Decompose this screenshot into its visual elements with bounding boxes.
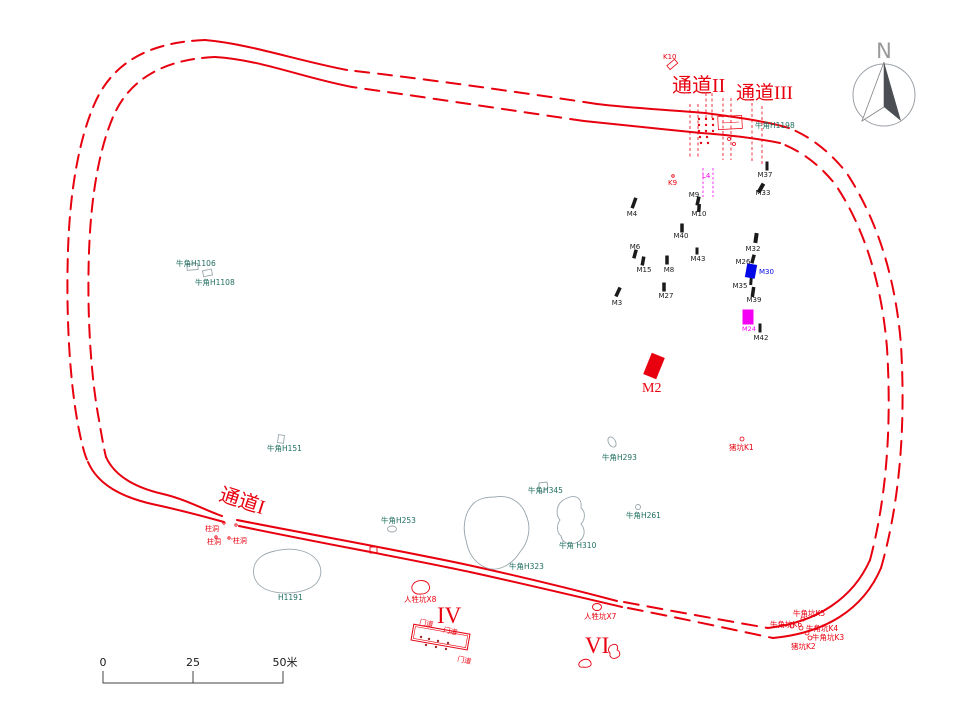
boundary-outer-solid-topleft <box>205 40 347 70</box>
posthole-dot <box>705 124 707 126</box>
map-label: 通道I <box>216 483 267 519</box>
posthole-dot <box>698 124 700 126</box>
map-label: 牛角H151 <box>267 443 302 453</box>
map-label: 50米 <box>273 656 298 669</box>
map-label: IV <box>437 603 462 628</box>
map-label: M4 <box>627 210 638 218</box>
map-label: M40 <box>674 232 689 240</box>
map-label: M42 <box>754 334 769 342</box>
small-pit-circle <box>235 524 237 526</box>
map-label: M27 <box>659 292 674 300</box>
small-pit-circle <box>672 175 675 178</box>
boundary-outer-solid-bottomleft <box>88 462 622 607</box>
tomb-bar-mark <box>750 254 756 264</box>
map-label: M15 <box>637 266 652 274</box>
map-label: VI <box>585 633 609 658</box>
tomb-bar-mark <box>696 248 699 255</box>
small-pit-circle <box>228 537 230 539</box>
tomb-bar-mark <box>766 162 769 171</box>
posthole-dot <box>706 136 708 138</box>
map-label: 猪坑K1 <box>729 442 754 452</box>
map-label: 门道 <box>419 617 435 629</box>
posthole-dot <box>705 118 707 120</box>
boundary-inner-solid-bottomleft <box>106 457 617 601</box>
small-pit-circle <box>733 143 736 146</box>
boundary-inner-dashed-topmiddle <box>352 87 584 121</box>
building-posthole-dot <box>437 640 439 642</box>
map-label: N <box>876 39 892 63</box>
boundary-inner-dashed-right <box>780 143 889 560</box>
map-labels-layer: K10通道II通道III牛角H1198K9L4M37M33M4M9M10M40M… <box>100 39 892 669</box>
posthole-dot <box>698 130 700 132</box>
map-label: L4 <box>702 172 711 180</box>
map-label: 牛角H253 <box>381 515 416 525</box>
map-label: 人牲坑X8 <box>404 594 437 604</box>
site-plan-map: K10通道II通道III牛角H1198K9L4M37M33M4M9M10M40M… <box>0 0 979 708</box>
boundary-outer-dashed-right <box>789 128 903 568</box>
map-label: 牛角H1108 <box>195 277 235 287</box>
building-posthole-dot <box>425 644 427 646</box>
map-label: 牛角坑K4 <box>806 623 838 633</box>
map-label: M8 <box>664 266 675 274</box>
pit-h261-shape <box>636 505 641 510</box>
map-label: 牛角H323 <box>509 561 544 571</box>
map-label: M39 <box>747 296 762 304</box>
tomb-bar-mark <box>640 256 645 265</box>
map-label: M30 <box>759 268 774 276</box>
map-label: M26 <box>736 258 751 266</box>
pit-h310-shape <box>557 497 584 544</box>
tomb-filled-m24 <box>743 310 754 325</box>
map-label: M10 <box>692 210 707 218</box>
map-label: '柱洞 <box>231 536 247 545</box>
tomb-filled-m2 <box>643 353 665 380</box>
pit-h293-shape <box>606 435 618 448</box>
map-label: M2 <box>642 381 661 396</box>
posthole-dot <box>712 130 714 132</box>
map-label: 牛角坑K6 <box>770 619 802 629</box>
area-vi-shape-1 <box>609 644 620 658</box>
map-label: M9 <box>689 191 700 199</box>
map-label: M32 <box>746 245 761 253</box>
pit-h1191-shape <box>253 549 320 593</box>
map-label: M37 <box>758 171 773 179</box>
boundary-inner-solid-top-passage <box>584 121 780 143</box>
scale-bar <box>103 671 283 683</box>
map-canvas: K10通道II通道III牛角H1198K9L4M37M33M4M9M10M40M… <box>0 0 979 708</box>
boundary-inner-dashed-bottom <box>624 602 768 628</box>
tomb-bar-mark <box>759 324 762 333</box>
boundary-inner-solid-topleft <box>215 57 352 87</box>
tomb-bar-mark <box>614 287 621 298</box>
map-label: M3 <box>612 299 623 307</box>
map-label: 通道III <box>736 82 793 104</box>
red-feature-outlines <box>370 547 620 667</box>
map-label: 25 <box>186 656 200 669</box>
map-label: 牛角H293 <box>602 452 637 462</box>
pit-x7-shape <box>593 604 602 611</box>
map-label: 牛角 H310 <box>559 540 597 550</box>
pit-h1108-shape <box>202 269 212 277</box>
map-label: H1191 <box>278 593 303 602</box>
map-label: 柱洞 <box>207 537 221 546</box>
tomb-bar-mark <box>662 283 666 292</box>
map-label: 猪坑K2 <box>791 641 816 651</box>
tomb-bar-mark <box>753 233 758 243</box>
posthole-dot <box>712 124 714 126</box>
map-label: M43 <box>691 255 706 263</box>
map-label: K10 <box>663 53 677 61</box>
pit-h151-shape <box>277 435 284 444</box>
map-label: 牛角H345 <box>528 485 563 495</box>
map-label: 门道 <box>457 654 473 666</box>
tomb-bar-mark <box>665 256 669 265</box>
north-arrow <box>853 62 915 126</box>
tomb-bar-mark <box>630 197 637 209</box>
posthole-dot <box>700 142 702 144</box>
posthole-dot <box>699 136 701 138</box>
pit-x8-shape <box>412 581 430 595</box>
posthole-dot <box>698 118 700 120</box>
posthole-dot <box>712 118 714 120</box>
boundary-inner-dashed-left <box>88 57 215 457</box>
area-vi-shape-2 <box>579 659 591 667</box>
map-label: 牛角H1198 <box>755 120 795 130</box>
building-posthole-dot <box>445 648 447 650</box>
map-label: 通道II <box>672 74 725 97</box>
map-label: M33 <box>756 189 771 197</box>
map-label: 牛角坑K3 <box>812 632 844 642</box>
building-posthole-dot <box>435 646 437 648</box>
boundary-outer-dashed-topmiddle <box>347 70 597 104</box>
pit-h253-shape <box>388 526 397 532</box>
small-pit-circle <box>740 437 744 441</box>
posthole-dot <box>705 130 707 132</box>
map-label: 柱洞 <box>205 524 219 533</box>
map-label: M35 <box>733 282 748 290</box>
posthole-dot <box>707 142 709 144</box>
building-posthole-dot <box>447 642 449 644</box>
pit-h323-shape <box>464 496 529 569</box>
map-label: 牛角H1106 <box>176 258 216 268</box>
map-label: 牛角坑K5 <box>793 608 825 618</box>
boundary-outer-dashed-bottom <box>628 608 773 638</box>
small-pit-circle <box>728 138 731 141</box>
map-label: 牛角H261 <box>626 510 661 520</box>
map-label: 0 <box>100 656 107 669</box>
map-label: M6 <box>630 243 641 251</box>
north-arrow-right-half <box>884 62 901 121</box>
map-label: 人牲坑X7 <box>584 611 617 621</box>
map-label: M24 <box>742 325 756 333</box>
building-posthole-dot <box>420 636 422 638</box>
building-posthole-dot <box>428 638 430 640</box>
map-label: K9 <box>668 179 677 187</box>
